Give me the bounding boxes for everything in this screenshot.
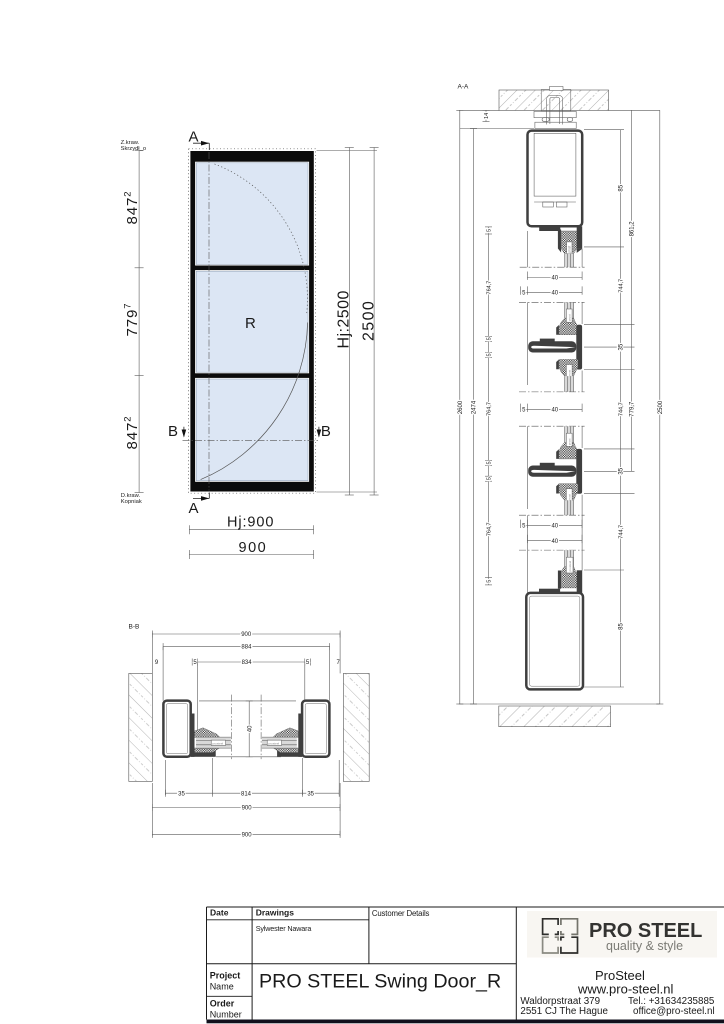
svg-text:2474: 2474: [472, 400, 478, 414]
svg-text:prost: prost: [568, 370, 572, 377]
svg-text:Hj:900: Hj:900: [227, 515, 274, 531]
svg-text:40: 40: [551, 408, 558, 414]
svg-text:R: R: [245, 315, 256, 332]
svg-text:prosteel: prosteel: [269, 741, 280, 745]
svg-text:35: 35: [619, 343, 625, 350]
svg-text:Date: Date: [210, 908, 229, 918]
svg-text:www.pro-steel.nl: www.pro-steel.nl: [577, 981, 673, 996]
svg-text:779,7: 779,7: [630, 401, 636, 417]
svg-text:prost: prost: [568, 438, 572, 445]
svg-text:814: 814: [241, 791, 252, 797]
svg-text:prost: prost: [568, 246, 572, 253]
svg-text:14: 14: [484, 113, 490, 119]
svg-text:40: 40: [551, 276, 558, 282]
svg-text:764,7: 764,7: [487, 402, 493, 416]
svg-text:900: 900: [239, 540, 268, 556]
svg-text:A: A: [189, 500, 199, 517]
svg-text:B: B: [321, 423, 331, 440]
svg-text:35: 35: [178, 791, 185, 797]
svg-text:35: 35: [619, 467, 625, 474]
svg-text:85: 85: [619, 623, 625, 630]
svg-text:5: 5: [487, 353, 493, 356]
svg-text:Kopniak: Kopniak: [121, 499, 142, 505]
svg-text:Drawings: Drawings: [256, 908, 295, 918]
svg-text:2600: 2600: [458, 400, 464, 414]
svg-text:Hj:2500: Hj:2500: [335, 290, 352, 348]
svg-text:Name: Name: [210, 982, 234, 992]
svg-text:764,7: 764,7: [487, 522, 493, 536]
svg-text:2500: 2500: [360, 300, 377, 341]
svg-text:B-B: B-B: [129, 624, 140, 631]
svg-text:prost: prost: [568, 314, 572, 321]
svg-text:Order: Order: [210, 999, 235, 1009]
svg-text:prosteel: prosteel: [568, 560, 572, 571]
svg-text:5: 5: [487, 229, 493, 232]
svg-text:prost: prost: [568, 494, 572, 501]
svg-text:Skrzydł_o: Skrzydł_o: [121, 146, 146, 152]
svg-text:2551 CJ The Hague: 2551 CJ The Hague: [520, 1006, 608, 1017]
svg-text:834: 834: [242, 660, 253, 666]
svg-text:Customer Details: Customer Details: [372, 909, 430, 918]
svg-text:5: 5: [487, 461, 493, 464]
svg-text:prosteel: prosteel: [213, 741, 224, 745]
svg-text:B: B: [168, 423, 178, 440]
svg-text:40: 40: [551, 524, 558, 530]
svg-text:900: 900: [242, 806, 253, 812]
svg-text:Project: Project: [210, 971, 241, 981]
svg-text:744,7: 744,7: [619, 279, 625, 293]
svg-text:85: 85: [619, 184, 625, 191]
svg-text:office@pro-steel.nl: office@pro-steel.nl: [633, 1006, 715, 1017]
svg-text:5: 5: [487, 580, 493, 583]
svg-text:40: 40: [247, 725, 253, 732]
svg-text:PRO STEEL Swing Door_R: PRO STEEL Swing Door_R: [259, 971, 501, 993]
svg-text:5: 5: [487, 337, 493, 340]
svg-text:5: 5: [487, 477, 493, 480]
svg-text:900: 900: [242, 833, 253, 839]
svg-text:2500: 2500: [658, 400, 664, 414]
svg-text:764,7: 764,7: [487, 281, 493, 295]
svg-text:35: 35: [307, 791, 314, 797]
svg-text:Number: Number: [210, 1010, 242, 1020]
svg-text:744,7: 744,7: [619, 525, 625, 539]
svg-text:quality & style: quality & style: [606, 939, 683, 953]
svg-text:884: 884: [241, 645, 252, 651]
svg-text:A-A: A-A: [458, 84, 470, 91]
svg-text:861,2: 861,2: [630, 221, 636, 237]
svg-text:40: 40: [551, 539, 558, 545]
svg-text:900: 900: [241, 632, 252, 638]
svg-text:744,7: 744,7: [619, 402, 625, 416]
svg-text:Sylwester Nawara: Sylwester Nawara: [256, 924, 312, 933]
svg-text:40: 40: [551, 291, 558, 297]
